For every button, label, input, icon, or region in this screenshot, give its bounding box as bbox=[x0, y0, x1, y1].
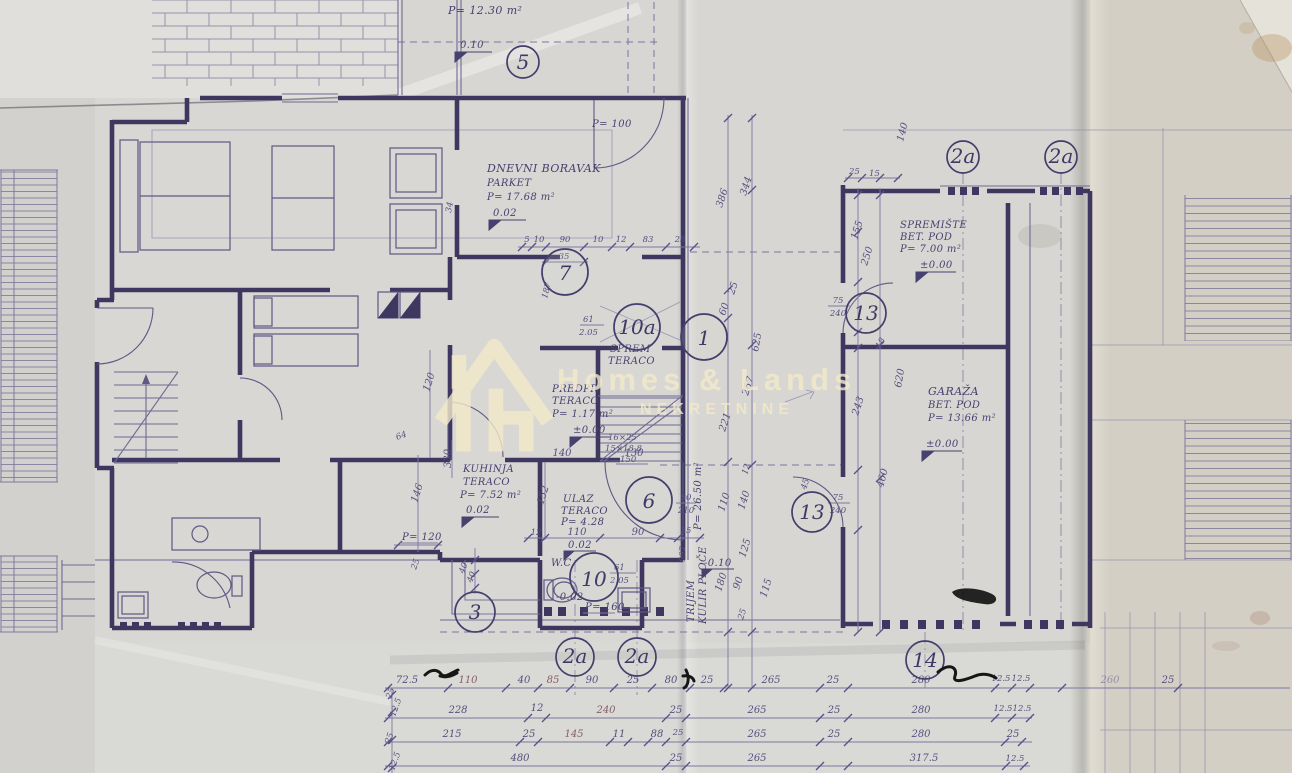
svg-text:2a: 2a bbox=[1048, 144, 1074, 168]
dim-value: 5 bbox=[524, 235, 529, 245]
svg-text:6: 6 bbox=[643, 489, 656, 513]
dim-value: 480 bbox=[509, 753, 530, 764]
dim-value: 34 bbox=[444, 201, 456, 213]
dim-value: 240 bbox=[595, 705, 616, 716]
svg-text:2a: 2a bbox=[950, 144, 976, 168]
elevation-mark: ±0.00 bbox=[573, 425, 606, 436]
svg-text:3: 3 bbox=[469, 600, 482, 624]
position-marker-2a: 2a bbox=[556, 638, 594, 676]
dim-value: 110 bbox=[567, 527, 587, 538]
room-area-spremiste: P= 7.00 m² bbox=[899, 244, 961, 255]
position-marker-1: 1 bbox=[681, 314, 727, 360]
brick-hatch bbox=[152, 0, 398, 86]
room-note-dnevni: P= 100 bbox=[591, 119, 632, 130]
position-marker-2a: 2a bbox=[618, 638, 656, 676]
door-size-height: 2.05 bbox=[578, 328, 598, 338]
dim-value: 280 bbox=[910, 729, 931, 740]
dim-value: 80 bbox=[665, 675, 678, 686]
elevation-mark: -0.10 bbox=[704, 558, 732, 569]
dim-value: 25 bbox=[700, 675, 714, 686]
dim-value: 88 bbox=[651, 729, 664, 740]
dim-value: 12.5 bbox=[994, 704, 1013, 714]
dim-value: 90 bbox=[632, 527, 645, 538]
room-floor-garaza: BET. POD bbox=[927, 400, 980, 411]
scanned-floor-plan: 72.5 110 40 85 90 25 80 25 265 25 280 12… bbox=[0, 0, 1292, 773]
room-label-ulaz: ULAZ bbox=[563, 494, 594, 505]
dim-value: 90 bbox=[560, 235, 571, 245]
position-marker-5: 5 bbox=[507, 46, 539, 78]
dim-value: 280 bbox=[910, 705, 931, 716]
dim-value: 90 bbox=[681, 493, 692, 503]
room-floor-predpr: TERACO bbox=[552, 396, 599, 407]
room-label-spremiste: SPREMIŠTE bbox=[900, 219, 967, 231]
elevation-mark: 0.02 bbox=[568, 540, 592, 551]
dim-value: 140 bbox=[552, 448, 572, 459]
stair-note: 15×18.8 bbox=[605, 444, 642, 454]
watermark-brand: Homes & Lands bbox=[557, 362, 856, 397]
position-marker-10: 10 bbox=[570, 553, 618, 601]
elevation-mark: 0.10 bbox=[460, 40, 484, 51]
dim-value: 25 bbox=[848, 167, 860, 177]
stair-note: 16×25 bbox=[608, 433, 637, 443]
dim-value: 90 bbox=[586, 675, 599, 686]
room-area-dnevni: P= 17.68 m² bbox=[486, 192, 555, 203]
dim-value: 40 bbox=[517, 675, 531, 686]
stair-note: 150 bbox=[620, 455, 637, 465]
dim-value: 75 bbox=[833, 493, 844, 503]
room-area-ulaz: P= 4.28 bbox=[560, 517, 604, 528]
dim-note-p120: P= 120 bbox=[401, 532, 442, 543]
elevation-mark: ±0.00 bbox=[920, 260, 953, 271]
svg-text:14: 14 bbox=[912, 648, 937, 672]
dim-value: 317.5 bbox=[910, 753, 939, 764]
room-label-garaza: GARAŽA bbox=[928, 384, 979, 398]
dim-value: 228 bbox=[447, 705, 467, 716]
position-marker-3: 3 bbox=[455, 592, 495, 632]
room-area-predpr: P= 1.17 m² bbox=[551, 409, 613, 420]
svg-text:TRIJEM: TRIJEM bbox=[686, 580, 697, 622]
position-marker-13: 13 bbox=[846, 293, 886, 333]
dim-value: 15 bbox=[869, 169, 880, 179]
svg-text:P= 26.50 m²: P= 26.50 m² bbox=[693, 462, 704, 531]
svg-text:7: 7 bbox=[559, 261, 572, 285]
dim-value: 12.5 bbox=[1006, 754, 1025, 764]
dim-value: 85 bbox=[547, 675, 560, 686]
room-floor-kuhinja: TERACO bbox=[463, 477, 510, 488]
position-marker-13: 13 bbox=[792, 492, 832, 532]
room-label-attic-area: P= 12.30 m² bbox=[447, 4, 522, 17]
dim-value: 25 bbox=[827, 729, 841, 740]
dim-value: 25 bbox=[680, 526, 692, 536]
dim-value: 25 bbox=[827, 705, 841, 716]
dim-value: 215 bbox=[441, 729, 461, 740]
dim-value: 12 bbox=[616, 235, 627, 245]
position-marker-7: 7 bbox=[542, 249, 588, 295]
dim-value: 11 bbox=[613, 729, 626, 740]
dim-value: 25 bbox=[669, 705, 683, 716]
paper-stain bbox=[1252, 34, 1292, 62]
dim-value: 25 bbox=[672, 728, 684, 738]
dim-value: 265 bbox=[746, 753, 766, 764]
room-area-garaza: P= 13.66 m² bbox=[927, 413, 996, 424]
watermark-subtitle: NEKRETNINE bbox=[640, 401, 794, 418]
svg-text:10a: 10a bbox=[618, 315, 655, 339]
door-size-width: 61 bbox=[583, 315, 594, 325]
dim-value: 75 bbox=[833, 296, 844, 306]
position-marker-2a: 2a bbox=[1045, 141, 1077, 173]
dim-value: 72.5 bbox=[396, 675, 418, 686]
floor-plan-svg: 72.5 110 40 85 90 25 80 25 265 25 280 12… bbox=[0, 0, 1292, 773]
room-floor-spremiste: BET. POD bbox=[899, 232, 952, 243]
dim-value: 240 bbox=[829, 309, 847, 319]
dim-value: 10 bbox=[593, 235, 604, 245]
dim-value: 25 bbox=[669, 753, 683, 764]
dim-value: 265 bbox=[746, 729, 766, 740]
room-area-kuhinja: P= 7.52 m² bbox=[459, 490, 521, 501]
svg-text:2a: 2a bbox=[624, 644, 650, 668]
dim-value: 25 bbox=[1161, 675, 1175, 686]
svg-text:13: 13 bbox=[853, 301, 878, 325]
position-marker-6: 6 bbox=[626, 477, 672, 523]
dim-value: 260 bbox=[1099, 675, 1120, 686]
elevation-mark: 0.02 bbox=[466, 505, 490, 516]
svg-text:1: 1 bbox=[698, 326, 711, 350]
dim-value: 265 bbox=[746, 705, 766, 716]
svg-text:13: 13 bbox=[799, 500, 824, 524]
elevation-mark: ±0.00 bbox=[926, 439, 959, 450]
dim-value: 12 bbox=[531, 703, 544, 714]
room-floor-dnevni: PARKET bbox=[486, 178, 532, 189]
dim-value: 83 bbox=[643, 235, 654, 245]
svg-text:2a: 2a bbox=[562, 644, 588, 668]
dim-value: 25 bbox=[522, 729, 536, 740]
dim-value: 12.5 bbox=[1012, 674, 1031, 684]
dim-value: 10 bbox=[534, 235, 545, 245]
elevation-mark: 0.02 bbox=[493, 208, 517, 219]
room-note-wc: P= 160 bbox=[584, 602, 625, 613]
dim-value: 25 bbox=[1006, 729, 1020, 740]
dim-value: 110 bbox=[458, 675, 478, 686]
position-marker-2a: 2a bbox=[947, 141, 979, 173]
svg-text:10: 10 bbox=[581, 567, 607, 591]
room-floor-ulaz: TERACO bbox=[561, 506, 608, 517]
dim-value: 25 bbox=[826, 675, 840, 686]
position-marker-10a: 10a bbox=[614, 304, 660, 350]
dim-value: 25 bbox=[674, 235, 686, 245]
dim-value: 092 bbox=[678, 546, 688, 562]
svg-text:5: 5 bbox=[517, 50, 530, 74]
dim-value: 12.5 bbox=[1013, 704, 1032, 714]
dim-value: 12 bbox=[531, 528, 542, 538]
dim-value: 265 bbox=[760, 675, 780, 686]
dim-value: 145 bbox=[564, 729, 583, 740]
room-label-kuhinja: KUHINJA bbox=[462, 464, 514, 475]
dim-value: 330 bbox=[443, 448, 454, 468]
room-label-dnevni: DNEVNI BORAVAK bbox=[486, 162, 601, 175]
